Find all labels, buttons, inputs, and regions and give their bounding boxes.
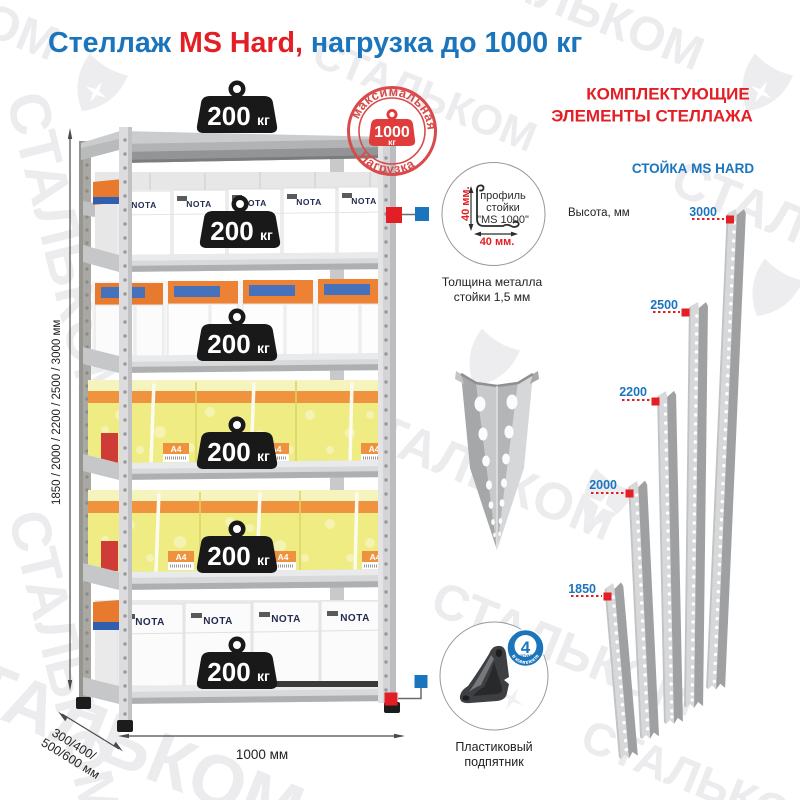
svg-text:NOTA: NOTA: [271, 614, 301, 625]
svg-text:кг: кг: [257, 552, 270, 568]
svg-text:NOTA: NOTA: [131, 200, 156, 210]
svg-text:КОМПЛЕКТУЮЩИЕ: КОМПЛЕКТУЮЩИЕ: [586, 85, 749, 104]
svg-text:Пластиковый: Пластиковый: [455, 740, 532, 754]
svg-text:подпятник: подпятник: [464, 755, 524, 769]
svg-text:Толщина металла: Толщина металла: [442, 275, 543, 289]
svg-text:стойки: стойки: [486, 202, 520, 214]
svg-text:профиль: профиль: [480, 190, 526, 202]
svg-text:кг: кг: [388, 137, 396, 147]
svg-text:NOTA: NOTA: [186, 199, 211, 209]
svg-text:200: 200: [207, 657, 250, 687]
svg-text:кг: кг: [257, 340, 270, 356]
svg-text:штуки: штуки: [520, 653, 533, 658]
svg-text:2500: 2500: [650, 298, 678, 312]
svg-text:NOTA: NOTA: [351, 196, 376, 206]
svg-text:200: 200: [207, 101, 250, 131]
svg-text:NOTA: NOTA: [296, 197, 321, 207]
svg-text:Высота, мм: Высота, мм: [568, 207, 630, 219]
svg-text:200: 200: [207, 329, 250, 359]
svg-text:кг: кг: [260, 227, 273, 243]
svg-text:стойки 1,5 мм: стойки 1,5 мм: [454, 290, 531, 304]
svg-text:200: 200: [207, 437, 250, 467]
svg-text:Стеллаж MS Hard, нагрузка до 1: Стеллаж MS Hard, нагрузка до 1000 кг: [48, 27, 582, 59]
svg-text:А4: А4: [278, 552, 289, 562]
svg-text:А4: А4: [176, 552, 187, 562]
svg-text:NOTA: NOTA: [135, 617, 165, 628]
svg-text:NOTA: NOTA: [203, 616, 233, 627]
svg-text:3000: 3000: [689, 205, 717, 219]
svg-text:200: 200: [210, 216, 253, 246]
svg-text:2000: 2000: [589, 478, 617, 492]
svg-text:ЭЛЕМЕНТЫ СТЕЛЛАЖА: ЭЛЕМЕНТЫ СТЕЛЛАЖА: [551, 107, 753, 126]
svg-text:кг: кг: [257, 448, 270, 464]
svg-text:1850: 1850: [568, 582, 596, 596]
svg-text:кг: кг: [257, 668, 270, 684]
svg-text:40 мм.: 40 мм.: [460, 186, 472, 221]
svg-text:А4: А4: [171, 444, 182, 454]
svg-text:"MS 1000": "MS 1000": [477, 214, 529, 226]
svg-text:40 мм.: 40 мм.: [480, 236, 515, 248]
svg-text:кг: кг: [257, 112, 270, 128]
svg-text:1850 / 2000 / 2200 / 2500 / 30: 1850 / 2000 / 2200 / 2500 / 3000 мм: [51, 320, 63, 505]
svg-text:200: 200: [207, 541, 250, 571]
svg-text:NOTA: NOTA: [340, 613, 370, 624]
svg-text:2200: 2200: [619, 385, 647, 399]
svg-text:СТОЙКА MS HARD: СТОЙКА MS HARD: [632, 161, 755, 176]
svg-text:1000 мм: 1000 мм: [236, 747, 288, 762]
